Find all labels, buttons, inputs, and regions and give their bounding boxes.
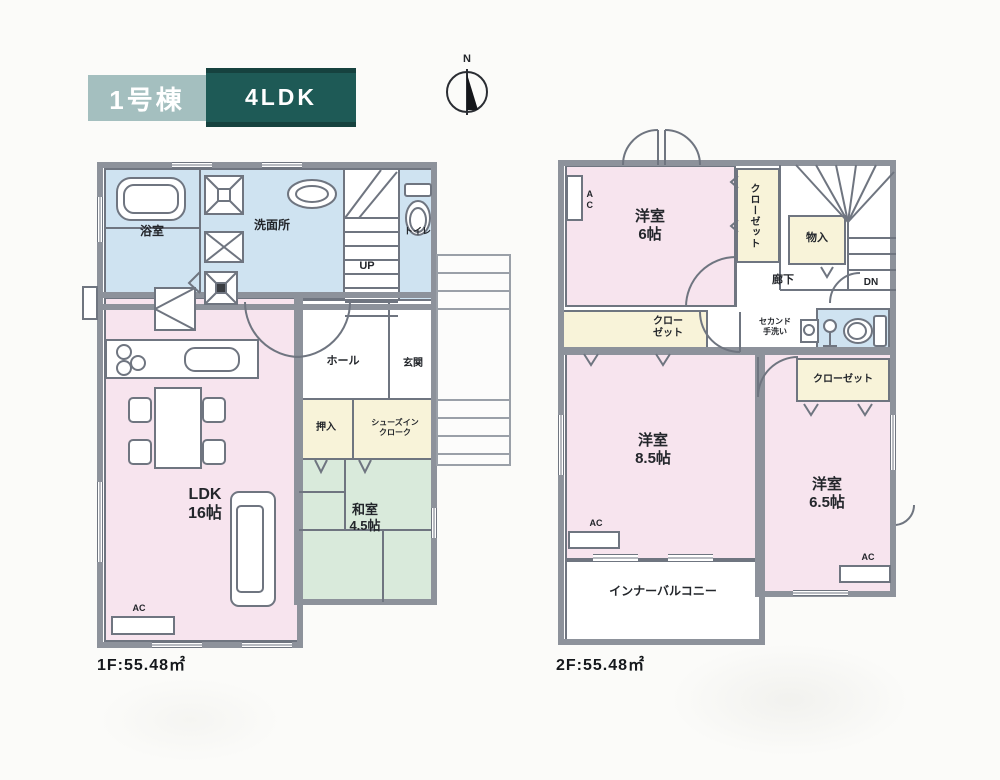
background-watermark [60,660,320,780]
oshiire-label: 押入 [303,422,349,434]
stairs-up-label: UP [347,260,387,273]
closet-east-label: クローゼット [803,374,883,386]
storage-label: 物入 [794,232,840,245]
bed6-size: 6帖 [638,226,661,243]
floorplan-page: { "header": { "unit_badge": "1号棟", "plan… [0,0,1000,773]
stairs-down-label: DN [851,277,891,289]
door-arc [896,505,914,525]
unit-badge: 1号棟 [88,75,206,121]
washitsu-label: 和室 4.5帖 [325,502,405,533]
compass-north-label: N [441,53,493,66]
ac-label: AC [121,603,157,614]
closet-main-line1: クロー [653,316,683,327]
washitsu-size: 4.5帖 [349,518,380,533]
washroom-label: 洗面所 [242,218,302,232]
bed65-name: 洋室 [812,476,842,493]
bed85-size: 8.5帖 [635,450,671,467]
floor1-plan: 浴室 洗面所 トイレ UP ホール 玄関 押入 シューズイン クローク LDK … [97,162,437,648]
bed85-label: 洋室 8.5帖 [613,432,693,468]
ldk-label: LDK 16帖 [160,485,250,523]
porch-steps [437,255,510,465]
closet-main-line2: ゼット [653,328,683,339]
shoes-cloak-label: シューズイン クローク [354,418,436,437]
closet-north-label: クローゼット [747,174,759,258]
washitsu-name: 和室 [352,502,378,517]
floor2-plan: 洋室 6帖 クローゼット AC 物入 DN 廊下 セカンド 手洗い クロー ゼッ… [558,160,898,652]
second-sink-line1: セカンド [759,317,791,326]
bath-label: 浴室 [122,224,182,238]
outer-wall [558,347,765,645]
ldk-size: 16帖 [188,505,222,522]
outer-wall [294,292,437,605]
entrance-label: 玄関 [391,358,435,370]
floor2-area-label: 2F:55.48㎡ [556,651,645,675]
bed65-size: 6.5帖 [809,494,845,511]
ldk-name: LDK [189,486,222,503]
floor1-area-label: 1F:55.48㎡ [97,651,186,675]
shoes-cloak-line2: クローク [379,428,411,437]
bed65-label: 洋室 6.5帖 [787,476,867,512]
window-protrusion [83,287,97,319]
toilet-label: トイレ [398,226,437,237]
bed6-name: 洋室 [635,208,665,225]
outer-wall [558,160,896,355]
hall-label: ホール [313,355,373,368]
compass-icon [441,66,493,118]
closet-main-label: クロー ゼット [636,316,700,340]
second-sink-line2: 手洗い [763,327,787,336]
bed85-name: 洋室 [638,432,668,449]
bed85-ac-label: AC [578,518,614,529]
entrance-door-arc [442,342,482,382]
bed6-label: 洋室 6帖 [610,208,690,244]
hallway-label: 廊下 [758,274,808,287]
outer-wall [97,292,303,648]
bed6-ac-label: AC [584,180,595,220]
plan-type-badge: 4LDK [206,68,356,127]
compass: N [441,53,493,123]
shoes-cloak-line1: シューズイン [371,418,419,427]
second-sink-label: セカンド 手洗い [749,317,801,336]
bed65-ac-label: AC [850,552,886,563]
balcony-label: インナーバルコニー [593,584,733,598]
